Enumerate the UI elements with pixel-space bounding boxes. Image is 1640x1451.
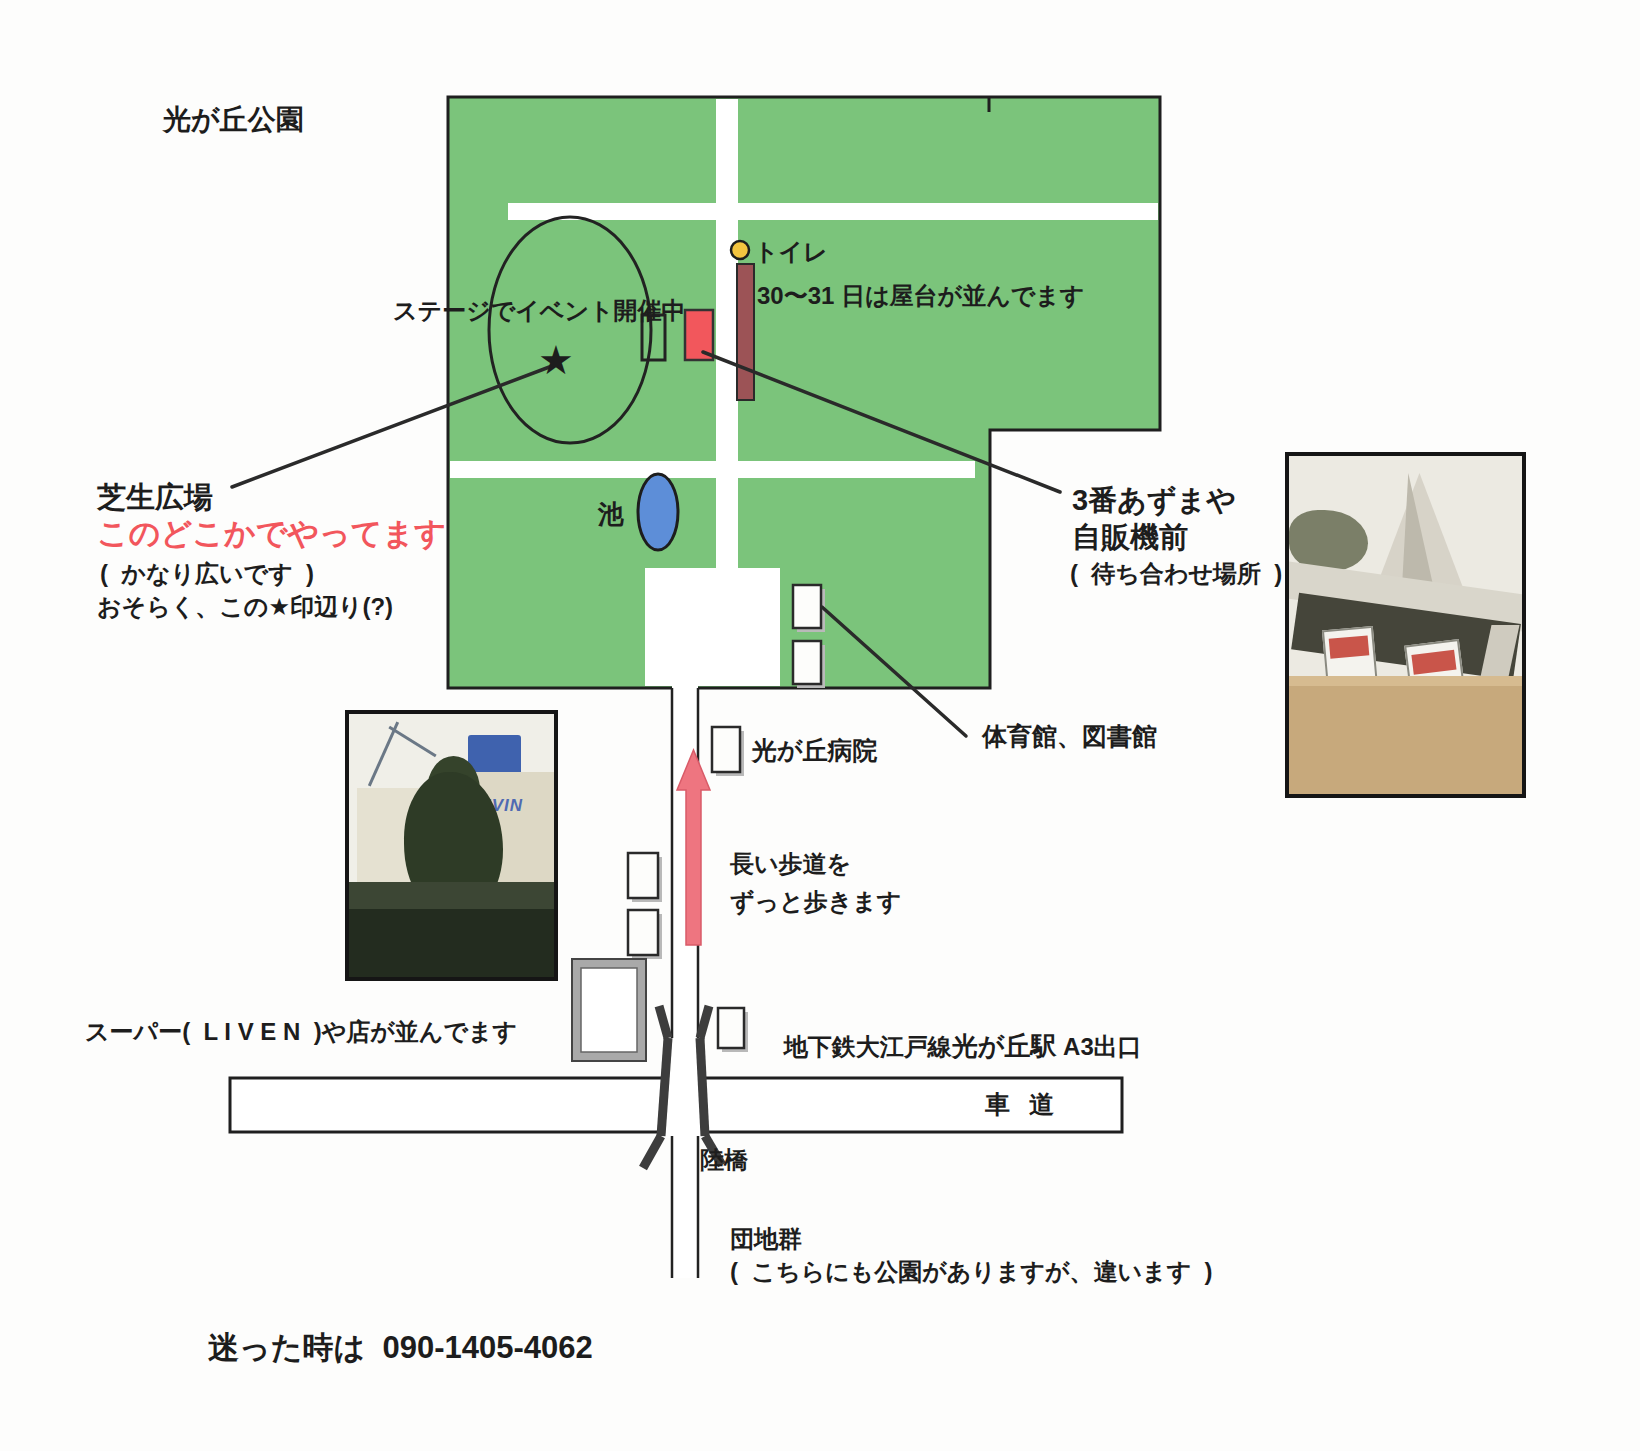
photo-supermarket: LIVIN [345, 710, 558, 981]
shops-note-label: スーパー( L I V E N )や店が並んでます [85, 1018, 517, 1046]
station-exit-box [718, 1008, 744, 1048]
stage-note-label: ステージでイベント開催中 [393, 297, 686, 325]
ground [1289, 686, 1522, 794]
toilet-label: トイレ [754, 238, 828, 266]
meeting-point-line3: ( 待ち合わせ場所 ) [1070, 560, 1282, 588]
contact-phone-label: 迷った時は 090-1405-4062 [208, 1330, 593, 1366]
page-title: 光が丘公園 [163, 104, 304, 136]
station-label: 地下鉄大江戸線光が丘駅 A3出口 [766, 1014, 1142, 1081]
road-label: 車 道 [985, 1090, 1060, 1119]
stalls-note-label: 30〜31 日は屋台が並んでます [757, 282, 1084, 310]
lawn-highlight-label: このどこかでやってます [97, 516, 446, 552]
gym-library-label: 体育館、図書館 [982, 722, 1157, 751]
shop-building-2 [628, 910, 658, 955]
hospital-label: 光が丘病院 [752, 736, 878, 765]
star-icon: ★ [538, 340, 574, 380]
station-line-name: 地下鉄大江戸線 [784, 1033, 952, 1060]
lawn-note2-label: おそらく、この★印辺り(?) [97, 593, 393, 621]
park-plaza [645, 568, 780, 686]
library-building [793, 641, 821, 684]
shop-building-1 [628, 853, 658, 898]
danchi-note-label: ( こちらにも公園がありますが、違います ) [730, 1258, 1213, 1286]
bicycle-row [349, 909, 554, 977]
vending-machine-display [1412, 649, 1457, 675]
toilet-marker [731, 241, 749, 259]
overpass-label: 陸橋 [700, 1146, 748, 1174]
pond-label: 池 [598, 500, 624, 530]
hospital-building [712, 727, 740, 772]
photo-azumaya [1285, 452, 1526, 798]
stall-row-bar [737, 264, 754, 400]
lawn-note1-label: ( かなり広いです ) [100, 560, 314, 588]
vending-machine-display [1329, 636, 1370, 659]
station-exit-label: A3出口 [1056, 1033, 1141, 1060]
lawn-plaza-label: 芝生広場 [97, 481, 213, 514]
park-path-vertical [716, 99, 738, 571]
park-path-horizontal-upper [508, 203, 1158, 220]
station-name: 光が丘駅 [952, 1031, 1057, 1061]
meeting-point-line1: 3番あずまや [1072, 484, 1236, 517]
gym-building [793, 585, 821, 628]
map-document: 光が丘公園 ステージでイベント開催中 ★ トイレ 30〜31 日は屋台が並んでま… [0, 0, 1640, 1451]
park-path-horizontal-lower [450, 461, 975, 478]
meeting-point-line2: 自販機前 [1072, 521, 1188, 554]
station-building [581, 968, 637, 1052]
tree-branch [388, 726, 436, 758]
walk-note-line2: ずっと歩きます [730, 888, 901, 916]
danchi-label: 団地群 [730, 1225, 802, 1253]
walk-note-line1: 長い歩道を [730, 850, 851, 878]
pond-shape [638, 474, 678, 550]
